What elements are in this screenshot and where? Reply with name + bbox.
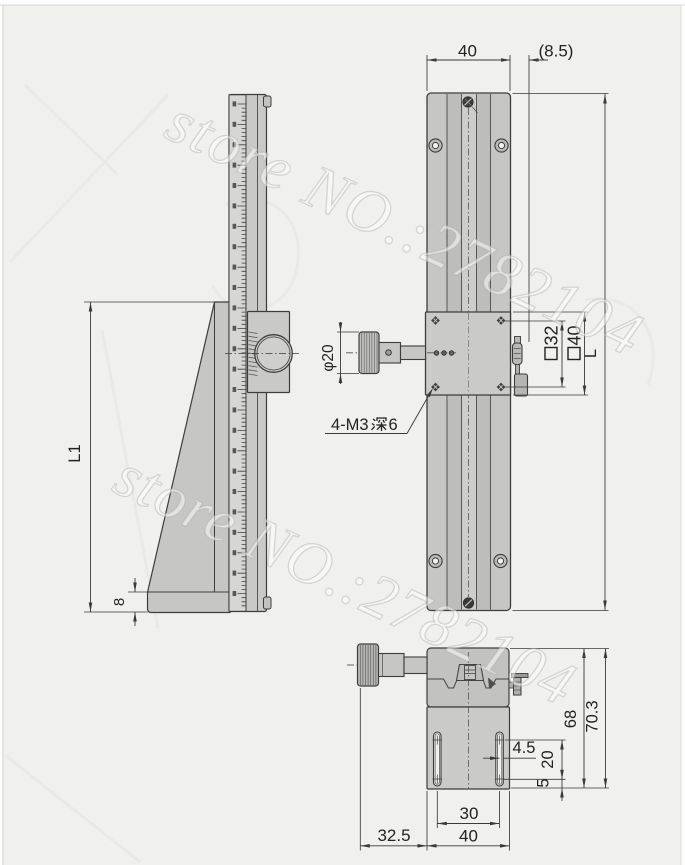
svg-text:70.3: 70.3	[584, 700, 602, 732]
svg-text:6: 6	[389, 416, 398, 434]
svg-text:40: 40	[458, 42, 477, 61]
svg-text:40: 40	[459, 827, 478, 846]
svg-text:φ20: φ20	[320, 344, 337, 372]
svg-text:68: 68	[562, 710, 580, 728]
svg-text:32.5: 32.5	[377, 826, 410, 845]
svg-text:(8.5): (8.5)	[539, 42, 574, 61]
svg-text:L1: L1	[66, 444, 84, 462]
svg-text:5: 5	[535, 778, 553, 787]
svg-text:8: 8	[111, 598, 128, 606]
svg-text:4-M3: 4-M3	[331, 416, 369, 434]
svg-text:20: 20	[539, 750, 557, 768]
svg-text:30: 30	[460, 804, 479, 823]
svg-text:4.5: 4.5	[513, 739, 536, 757]
